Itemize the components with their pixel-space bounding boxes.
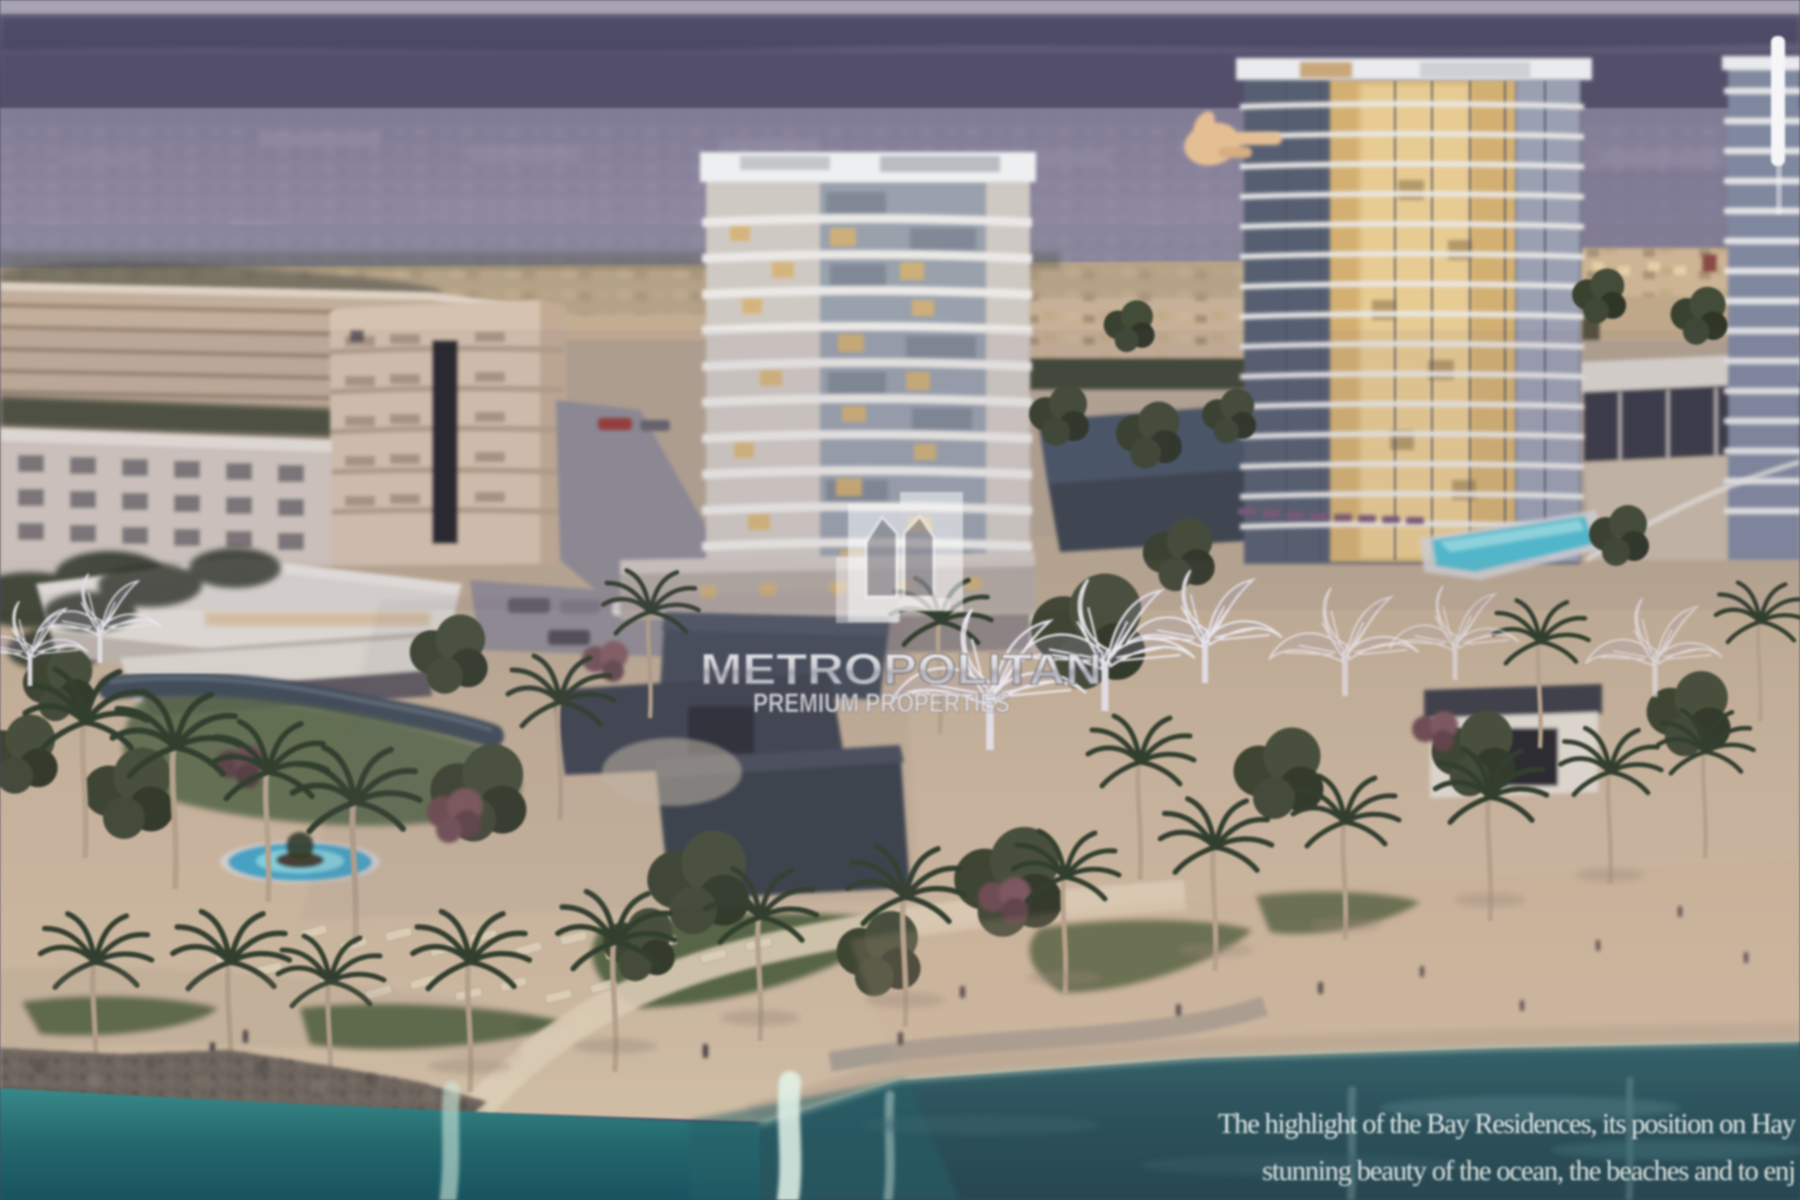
svg-text:The highlight of the Bay Resid: The highlight of the Bay Residences, its… — [1218, 1109, 1797, 1140]
svg-text:stunning beauty of the ocean,: stunning beauty of the ocean, the beache… — [1262, 1156, 1796, 1187]
svg-text:METROPOLITAN: METROPOLITAN — [700, 645, 1102, 694]
svg-text:PREMIUM PROPERTIES: PREMIUM PROPERTIES — [753, 688, 1010, 718]
